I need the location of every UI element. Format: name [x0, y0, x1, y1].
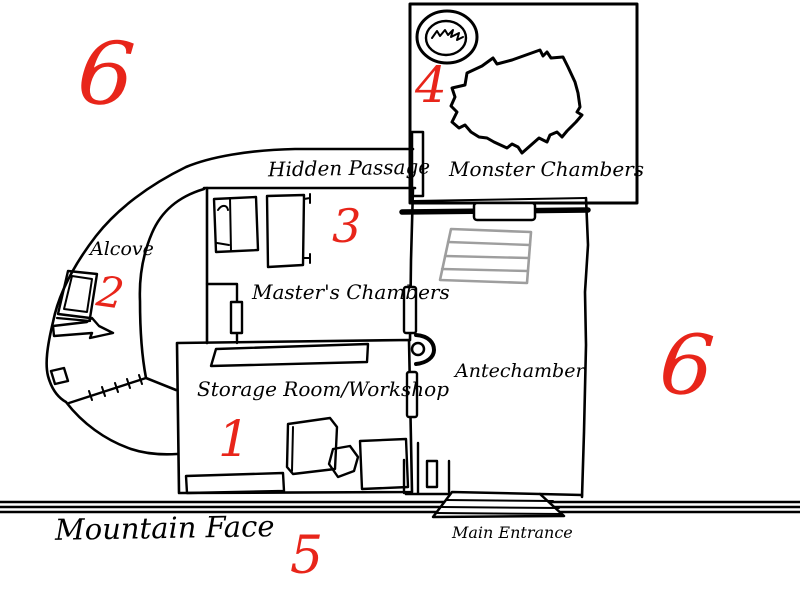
north-door [474, 203, 535, 220]
wall-niche-square [51, 368, 68, 384]
label-storage-room: Storage Room/Workshop [197, 378, 449, 400]
masters-door [207, 284, 242, 343]
antechamber-right-wall [582, 198, 588, 497]
label-alcove: Alcove [90, 239, 154, 260]
label-hidden-passage: Hidden Passage [268, 156, 430, 181]
second-bed [267, 194, 310, 267]
masters-chambers-room [204, 188, 415, 343]
marker-number-outside-right: 6 [656, 321, 717, 409]
gray-stairs [440, 229, 531, 283]
marker-number-masters: 3 [332, 203, 361, 249]
antechamber-room [402, 198, 588, 497]
label-monster-chambers: Monster Chambers [449, 158, 644, 180]
marker-number-monster: 4 [415, 60, 447, 110]
table-square [360, 439, 408, 489]
antechamber-bottom-wall-right [540, 494, 582, 495]
rock-pit-blob [451, 50, 582, 153]
workbench [211, 344, 368, 366]
marker-number-storage: 1 [218, 414, 250, 464]
barrel [329, 446, 358, 477]
mountain-face-lines [0, 502, 800, 512]
label-main-entrance: Main Entrance [452, 524, 573, 542]
floor-plan-canvas: Hidden Passage Monster Chambers Master's… [0, 0, 800, 600]
storage-workshop-room [177, 340, 412, 493]
bed-with-pillow [214, 197, 258, 252]
marker-number-alcove: 2 [94, 270, 126, 315]
label-masters-chambers: Master's Chambers [252, 281, 450, 303]
cave-inner-wall [140, 189, 204, 390]
door-pivot [412, 335, 434, 364]
label-antechamber: Antechamber [455, 361, 585, 382]
cave-steps-hatching [69, 375, 146, 403]
marker-number-outside-top-left: 6 [74, 28, 137, 121]
label-mountain-face: Mountain Face [55, 511, 275, 547]
main-entrance-steps [433, 492, 564, 517]
marker-number-entrance: 5 [290, 530, 323, 582]
low-bench [186, 473, 284, 493]
antechamber-top-gap-line [413, 198, 586, 201]
